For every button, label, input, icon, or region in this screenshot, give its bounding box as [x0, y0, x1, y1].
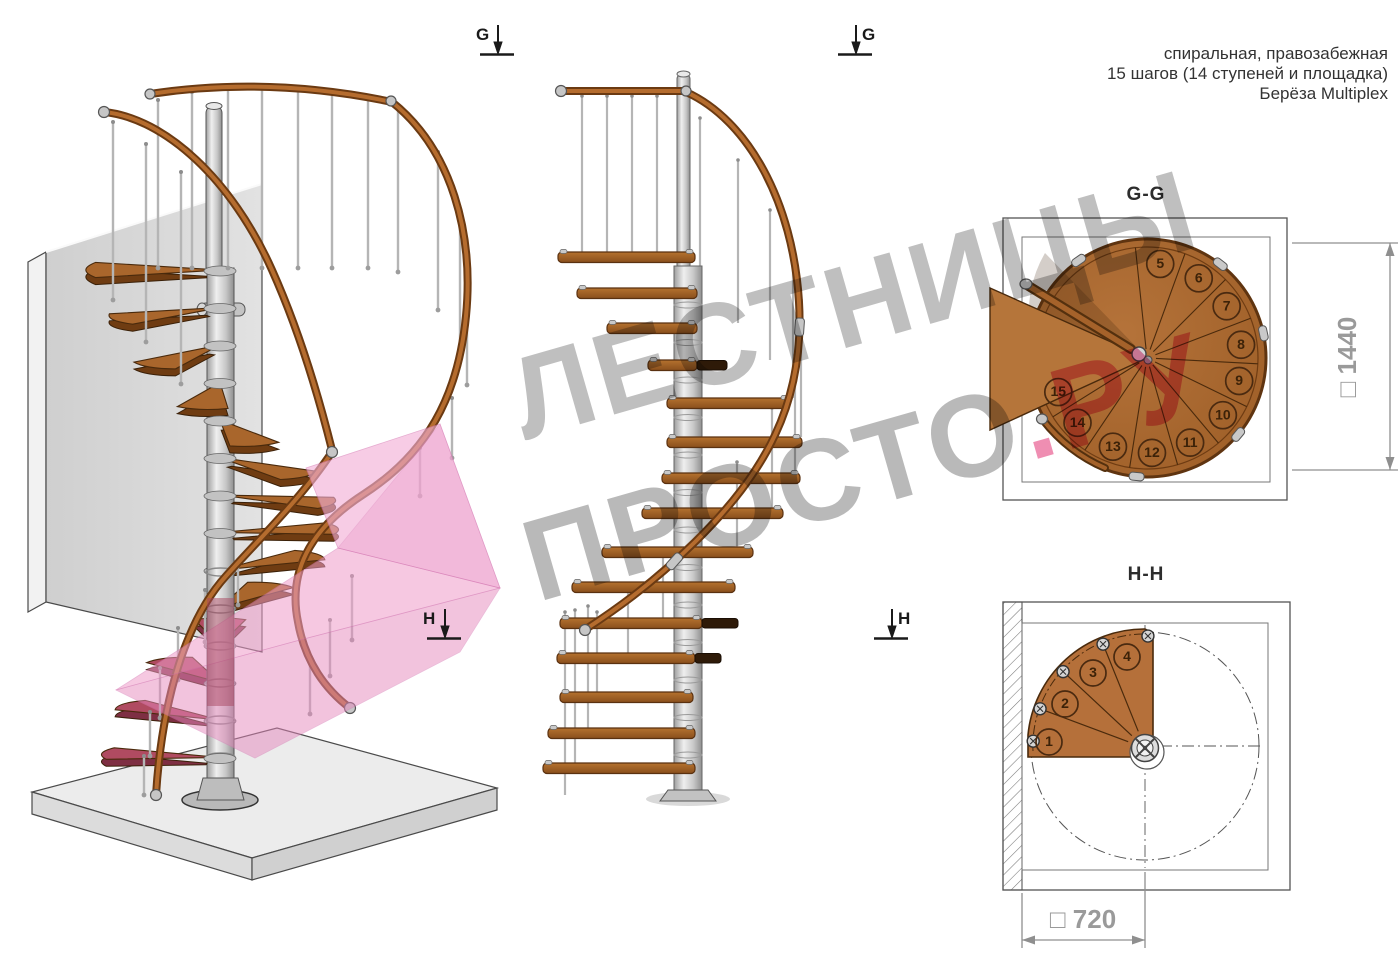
view-plan-hh: 1234 □ 720	[1003, 602, 1290, 948]
section-marker-g-left: G	[472, 22, 520, 62]
hh-wall-hatch	[1003, 602, 1022, 890]
gg-rail-connector	[1129, 472, 1145, 481]
stair-tread-elevation	[557, 651, 695, 664]
hh-baluster-bolt	[1097, 638, 1109, 650]
tread-end-dark	[702, 619, 738, 629]
step-number: 9	[1235, 372, 1243, 388]
wall-edge	[28, 252, 46, 612]
marker-letter: H	[423, 609, 435, 628]
marker-letter: H	[898, 609, 910, 628]
hh-baluster-bolt	[1057, 666, 1069, 678]
title-block: спиральная, правозабежная 15 шагов (14 с…	[1107, 44, 1388, 104]
marker-letter: G	[862, 25, 875, 44]
step-number: 1	[1045, 733, 1053, 749]
marker-letter: G	[476, 25, 489, 44]
stair-tread-elevation	[558, 250, 695, 263]
step-number: 7	[1223, 297, 1231, 313]
drawing-sheet: 56789101112131415 □ 1440	[0, 0, 1400, 969]
stair-type-line: спиральная, правозабежная	[1107, 44, 1388, 64]
hh-baluster-bolt	[1034, 703, 1046, 715]
dimension-label-1440: □ 1440	[1332, 317, 1362, 398]
stair-tread-elevation	[543, 761, 695, 774]
step-number: 8	[1237, 336, 1245, 352]
section-marker-g-right: G	[836, 22, 884, 62]
column-pink-tint	[207, 598, 234, 706]
view-3d-staircase	[28, 84, 500, 880]
stair-tread-elevation	[560, 690, 693, 703]
hh-center-hub	[1130, 735, 1164, 770]
hh-baluster-bolt	[1142, 630, 1154, 642]
section-marker-h-left: H	[419, 606, 467, 646]
step-number: 4	[1123, 648, 1131, 664]
material-line: Берёза Multiplex	[1107, 84, 1388, 104]
step-number: 3	[1089, 664, 1097, 680]
section-title-hh: H-H	[1086, 564, 1206, 586]
dimension-label-720: □ 720	[1050, 904, 1116, 934]
stair-tread-elevation	[548, 726, 695, 739]
step-number: 2	[1061, 695, 1069, 711]
tread-end-dark	[695, 654, 721, 664]
section-marker-h-right: H	[872, 606, 920, 646]
step-count-line: 15 шагов (14 ступеней и площадка)	[1107, 64, 1388, 84]
